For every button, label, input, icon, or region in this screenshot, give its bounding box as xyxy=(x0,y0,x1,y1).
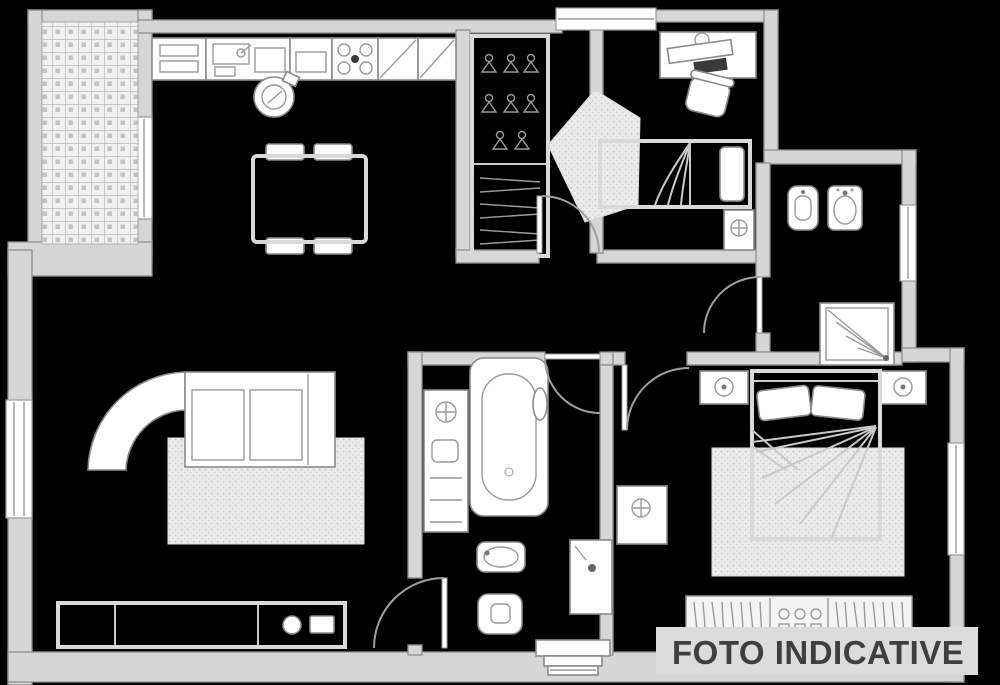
living-window xyxy=(6,400,32,518)
wall-bedroom2-east xyxy=(764,10,778,160)
wall-top-right xyxy=(652,10,778,22)
wall-bath1-west-a xyxy=(756,163,770,277)
kitchen-cabinet xyxy=(152,38,206,80)
bathroom-main xyxy=(424,358,612,634)
bathroom-cabinet xyxy=(424,390,468,532)
wall-bathroom-west-a xyxy=(408,352,422,578)
washbasin xyxy=(828,186,862,230)
living-bath-door xyxy=(374,578,447,648)
wall-top-main xyxy=(138,20,562,33)
master-door xyxy=(622,365,689,430)
floorplan-svg: FOTO INDICATIVE xyxy=(0,0,1000,685)
wall-bath1-west-b xyxy=(756,333,770,352)
washbasin xyxy=(477,542,525,572)
watermark-text: FOTO INDICATIVE xyxy=(672,634,964,671)
shower xyxy=(820,303,894,365)
speaker-icon xyxy=(283,616,301,634)
wall-terrace-left xyxy=(28,10,42,260)
flower-icon xyxy=(731,220,747,236)
floorplan-image: FOTO INDICATIVE xyxy=(0,0,1000,685)
tv-sideboard xyxy=(58,603,345,647)
lamp-nightstand-right xyxy=(880,371,926,404)
closet-hangers xyxy=(482,55,538,150)
washing-machine xyxy=(570,540,612,614)
wall-kitchen-closet xyxy=(456,30,470,256)
shower-drain-icon xyxy=(883,355,889,361)
dining-area xyxy=(253,144,366,254)
wall-bathroom-west-b xyxy=(408,645,422,655)
entry-rug xyxy=(548,90,640,222)
bathroom-door xyxy=(545,354,600,413)
tv-icon xyxy=(310,616,334,633)
bathtub-tap-icon xyxy=(533,388,547,420)
bidet xyxy=(788,186,818,230)
bathtub xyxy=(470,358,548,516)
pillow xyxy=(720,147,744,201)
bath1-door xyxy=(704,277,762,333)
bedroom-rug xyxy=(712,448,904,576)
wall-master-north-a xyxy=(613,352,625,365)
wall-terrace-top xyxy=(28,10,152,22)
corner-sofa xyxy=(185,372,335,467)
kitchen xyxy=(152,38,456,117)
wall-bedroom2-west-a xyxy=(590,20,603,98)
wall-bath1-top xyxy=(764,150,916,164)
corridor-cabinet xyxy=(617,486,667,544)
lamp-nightstand-left xyxy=(700,371,748,404)
pillow xyxy=(811,385,866,420)
wall-bathroom-north-b xyxy=(600,352,613,365)
bedroom2 xyxy=(600,32,756,250)
terrace-tiles xyxy=(42,22,138,244)
dining-table xyxy=(253,156,366,242)
closet-shelves xyxy=(480,178,540,244)
pillow xyxy=(756,385,811,421)
wall-hall-south-b xyxy=(597,250,764,263)
stove-knob-icon xyxy=(351,55,359,63)
bathroom1 xyxy=(788,186,894,365)
toilet xyxy=(478,594,522,634)
watermark-banner: FOTO INDICATIVE xyxy=(656,627,978,675)
